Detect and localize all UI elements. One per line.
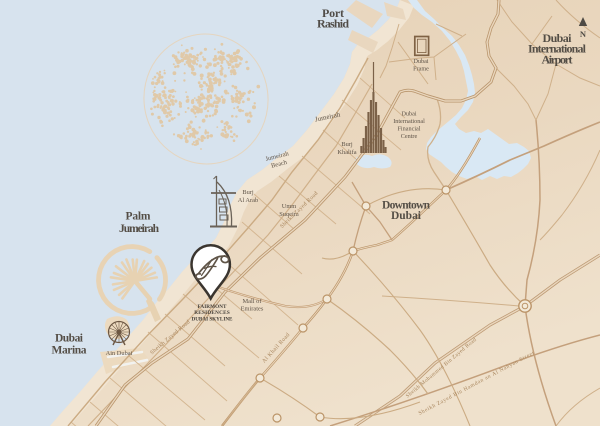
svg-text:Burj: Burj — [341, 141, 353, 148]
svg-text:Al Arab: Al Arab — [238, 197, 258, 204]
svg-text:Dubai: Dubai — [55, 333, 84, 345]
svg-text:Ain Dubai: Ain Dubai — [106, 350, 133, 357]
svg-text:Airport: Airport — [542, 53, 573, 67]
svg-text:Frame: Frame — [413, 66, 429, 73]
svg-text:Financial: Financial — [397, 126, 420, 133]
svg-text:Emirates: Emirates — [241, 306, 264, 313]
svg-text:DUBAI SKYLINE: DUBAI SKYLINE — [192, 317, 234, 323]
svg-text:Dubai: Dubai — [401, 111, 416, 118]
svg-text:Khalifa: Khalifa — [337, 149, 356, 156]
svg-text:Dubai: Dubai — [413, 58, 428, 65]
svg-text:Mall of: Mall of — [243, 298, 263, 305]
svg-text:Dubai: Dubai — [391, 210, 422, 222]
svg-text:Palm: Palm — [126, 211, 151, 223]
svg-text:Rashid: Rashid — [317, 17, 349, 31]
svg-text:Burj: Burj — [242, 189, 254, 196]
svg-text:Marina: Marina — [52, 345, 87, 357]
svg-text:RESIDENCES: RESIDENCES — [194, 310, 230, 316]
svg-text:International: International — [393, 118, 425, 125]
svg-text:Umm: Umm — [282, 203, 297, 210]
svg-text:N: N — [580, 29, 587, 39]
svg-text:Jumeirah: Jumeirah — [119, 223, 160, 235]
svg-text:Centre: Centre — [401, 133, 418, 140]
